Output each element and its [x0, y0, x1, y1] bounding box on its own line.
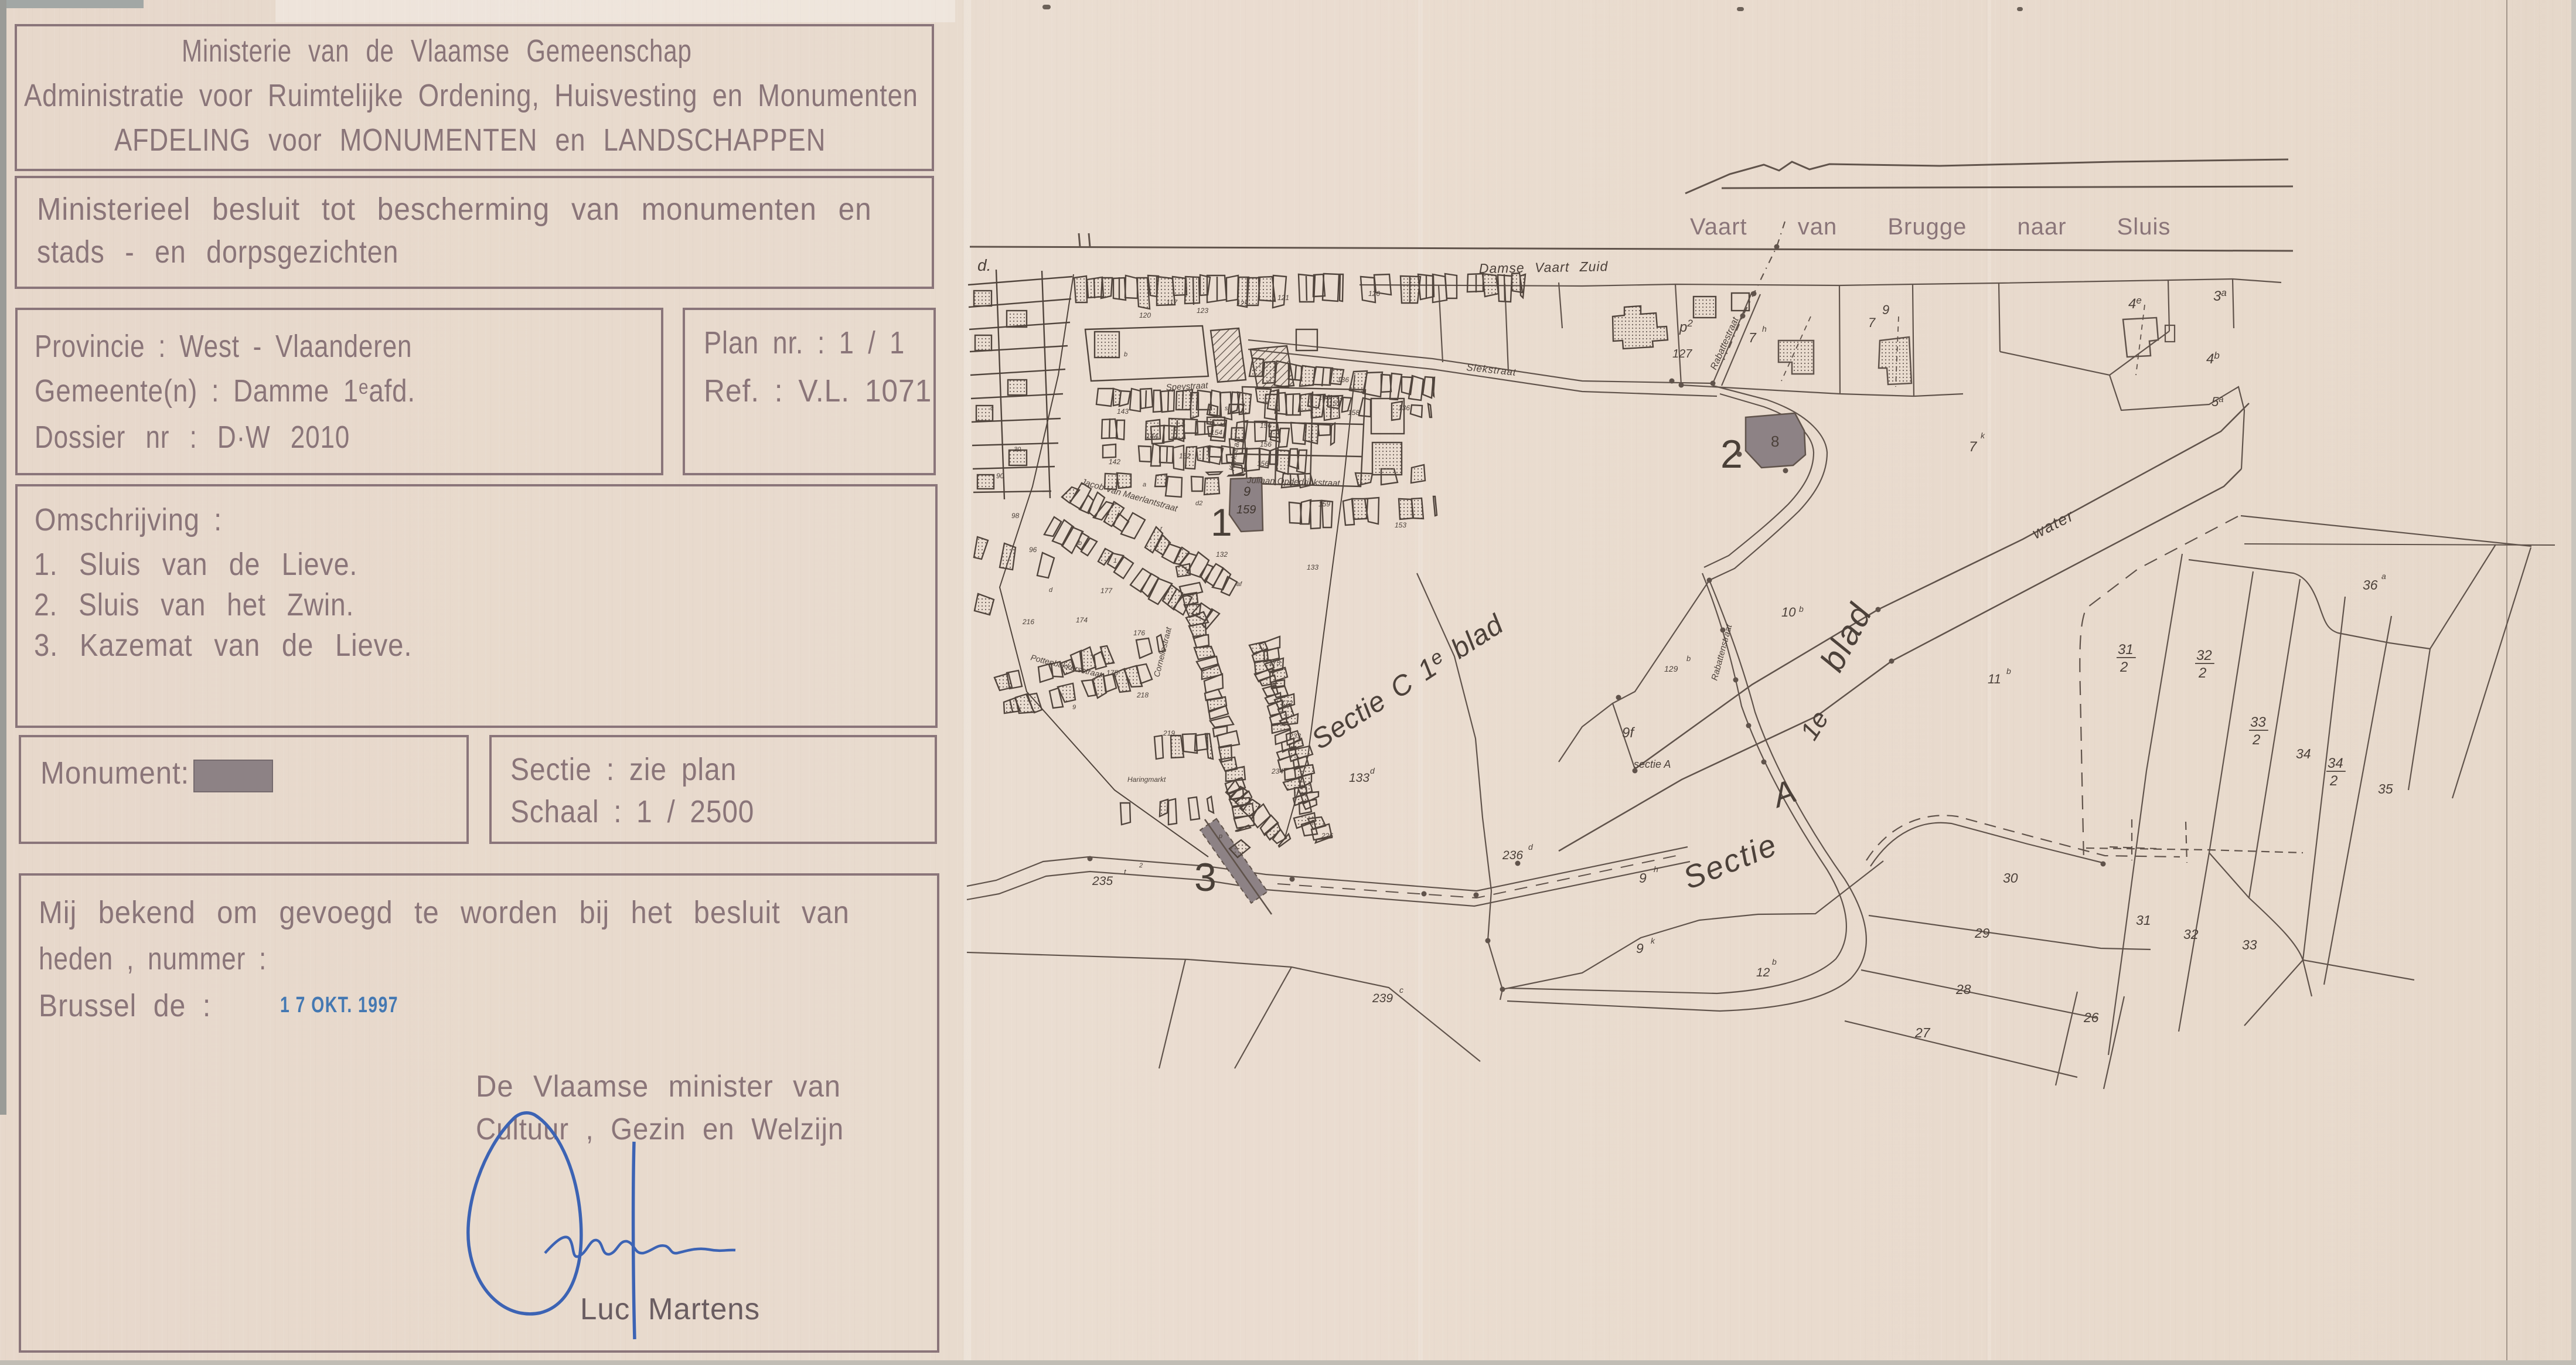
svg-text:34: 34 [2328, 755, 2343, 771]
svg-text:96: 96 [1029, 546, 1037, 554]
svg-text:152: 152 [1179, 452, 1191, 460]
svg-text:239: 239 [1372, 992, 1393, 1005]
svg-text:159: 159 [1236, 503, 1256, 516]
svg-text:172: 172 [1281, 699, 1293, 707]
svg-text:158: 158 [1348, 409, 1359, 417]
svg-text:218: 218 [1136, 691, 1149, 699]
svg-text:136: 136 [1398, 404, 1410, 412]
svg-text:b: b [1799, 604, 1804, 614]
svg-text:121: 121 [1277, 294, 1289, 302]
svg-text:k: k [1981, 431, 1985, 440]
svg-text:h: h [1654, 864, 1658, 874]
svg-text:Vaart van Brugge naar Sluis: Vaart van Brugge naar Sluis [1690, 214, 2170, 240]
svg-text:2: 2 [2329, 773, 2338, 789]
svg-text:r: r [1160, 525, 1163, 532]
svg-text:af: af [1236, 581, 1242, 588]
svg-text:30: 30 [2003, 870, 2018, 886]
svg-text:d: d [1370, 766, 1375, 775]
svg-text:32: 32 [2196, 648, 2212, 663]
svg-text:2: 2 [2120, 659, 2128, 675]
svg-text:125: 125 [1236, 299, 1248, 308]
svg-text:127: 127 [1672, 348, 1692, 360]
svg-text:174: 174 [1076, 616, 1088, 624]
svg-text:7: 7 [1749, 330, 1757, 345]
svg-text:35: 35 [2378, 781, 2393, 796]
svg-text:d: d [1049, 587, 1053, 594]
svg-text:7: 7 [1868, 315, 1876, 330]
svg-text:9: 9 [1243, 484, 1250, 499]
svg-text:3: 3 [1194, 855, 1217, 900]
svg-text:156: 156 [1260, 440, 1272, 448]
svg-text:142: 142 [1109, 458, 1120, 466]
svg-text:b: b [1124, 351, 1127, 358]
svg-text:226: 226 [1321, 832, 1333, 840]
svg-text:136: 136 [1337, 376, 1349, 384]
svg-text:A: A [1766, 772, 1801, 815]
svg-text:Haringmarkt: Haringmarkt [1127, 775, 1166, 784]
svg-text:5a: 5a [2212, 394, 2224, 409]
svg-text:26: 26 [2083, 1010, 2099, 1025]
svg-text:12: 12 [1756, 966, 1770, 979]
svg-text:132: 132 [1216, 550, 1228, 559]
svg-text:154: 154 [1211, 428, 1222, 437]
svg-text:9: 9 [1882, 302, 1889, 317]
svg-text:98: 98 [1011, 512, 1020, 520]
svg-text:p2: p2 [1679, 318, 1693, 335]
svg-text:30: 30 [1014, 446, 1021, 453]
svg-text:2: 2 [1139, 862, 1143, 869]
svg-text:233: 233 [1289, 732, 1301, 740]
svg-text:33: 33 [2250, 714, 2266, 730]
svg-text:144: 144 [1146, 432, 1158, 440]
svg-text:Sectie C 1e blad: Sectie C 1e blad [1306, 608, 1510, 756]
svg-text:9: 9 [1072, 704, 1076, 711]
svg-text:1e: 1e [1795, 706, 1834, 745]
svg-text:34: 34 [2296, 746, 2311, 761]
svg-text:a: a [1143, 481, 1146, 488]
svg-text:177: 177 [1100, 587, 1113, 595]
svg-text:219: 219 [1163, 729, 1175, 737]
svg-text:126: 126 [1368, 290, 1380, 298]
svg-text:k: k [1651, 936, 1655, 945]
svg-text:Rabattestraat: Rabattestraat [1709, 315, 1741, 371]
svg-text:117: 117 [1166, 298, 1178, 307]
svg-text:159: 159 [1318, 500, 1330, 508]
svg-text:b: b [1772, 957, 1777, 966]
svg-text:27: 27 [1914, 1025, 1931, 1040]
svg-text:10: 10 [1781, 605, 1796, 619]
svg-text:sectie A: sectie A [1634, 758, 1671, 770]
svg-text:216: 216 [1022, 618, 1034, 626]
svg-text:9f: 9f [1622, 725, 1635, 741]
svg-text:11: 11 [1988, 672, 2001, 686]
svg-text:153: 153 [1395, 521, 1406, 529]
svg-text:90: 90 [996, 472, 1004, 480]
svg-text:129: 129 [1664, 664, 1678, 673]
svg-text:234: 234 [1271, 767, 1283, 775]
svg-text:133: 133 [1307, 563, 1318, 571]
svg-text:water: water [2029, 506, 2077, 542]
svg-text:blad: blad [1813, 597, 1880, 678]
svg-text:2: 2 [2198, 665, 2206, 681]
svg-text:Sectie: Sectie [1678, 827, 1783, 897]
svg-text:b: b [1686, 654, 1691, 663]
svg-text:1: 1 [1113, 557, 1117, 564]
svg-text:8: 8 [1771, 433, 1779, 450]
svg-text:157: 157 [1329, 399, 1341, 407]
svg-text:a: a [2381, 571, 2386, 581]
svg-text:143: 143 [1117, 407, 1129, 416]
svg-text:4e: 4e [2128, 295, 2142, 312]
svg-text:4b: 4b [2206, 350, 2220, 367]
svg-text:9: 9 [1636, 941, 1644, 956]
svg-text:d: d [1528, 842, 1534, 852]
svg-text:3a: 3a [2213, 287, 2227, 304]
svg-text:h: h [1762, 324, 1767, 333]
svg-text:28: 28 [1955, 982, 1971, 997]
svg-text:d2: d2 [1195, 500, 1202, 507]
svg-text:b: b [2006, 666, 2011, 676]
svg-text:31: 31 [2136, 913, 2151, 928]
svg-text:29: 29 [1974, 925, 1990, 941]
svg-text:c: c [1399, 985, 1403, 995]
svg-text:36: 36 [2363, 577, 2378, 593]
svg-text:33: 33 [2242, 937, 2257, 952]
svg-text:176: 176 [1133, 629, 1145, 637]
svg-text:d.: d. [977, 256, 991, 274]
svg-text:120: 120 [1139, 311, 1151, 319]
svg-text:9: 9 [1639, 870, 1647, 886]
svg-text:32: 32 [2183, 927, 2199, 942]
svg-text:2: 2 [2252, 732, 2260, 748]
svg-text:133: 133 [1349, 771, 1369, 785]
svg-text:b: b [1078, 540, 1082, 547]
svg-text:1: 1 [1211, 501, 1232, 544]
svg-text:123: 123 [1197, 307, 1208, 315]
svg-text:236: 236 [1502, 849, 1523, 862]
svg-text:s: s [1225, 405, 1228, 412]
svg-text:156: 156 [1257, 459, 1269, 468]
svg-text:7: 7 [1969, 439, 1978, 455]
svg-text:p: p [1218, 833, 1222, 840]
svg-text:235: 235 [1092, 874, 1113, 888]
svg-text:c: c [990, 405, 994, 412]
svg-text:173: 173 [1269, 659, 1280, 667]
svg-text:156: 156 [1260, 421, 1272, 430]
svg-text:Damse Vaart Zuid: Damse Vaart Zuid [1479, 258, 1609, 276]
svg-text:Corneliestraat: Corneliestraat [1151, 625, 1173, 678]
svg-text:175: 175 [1106, 669, 1118, 677]
svg-text:31: 31 [2118, 642, 2134, 658]
